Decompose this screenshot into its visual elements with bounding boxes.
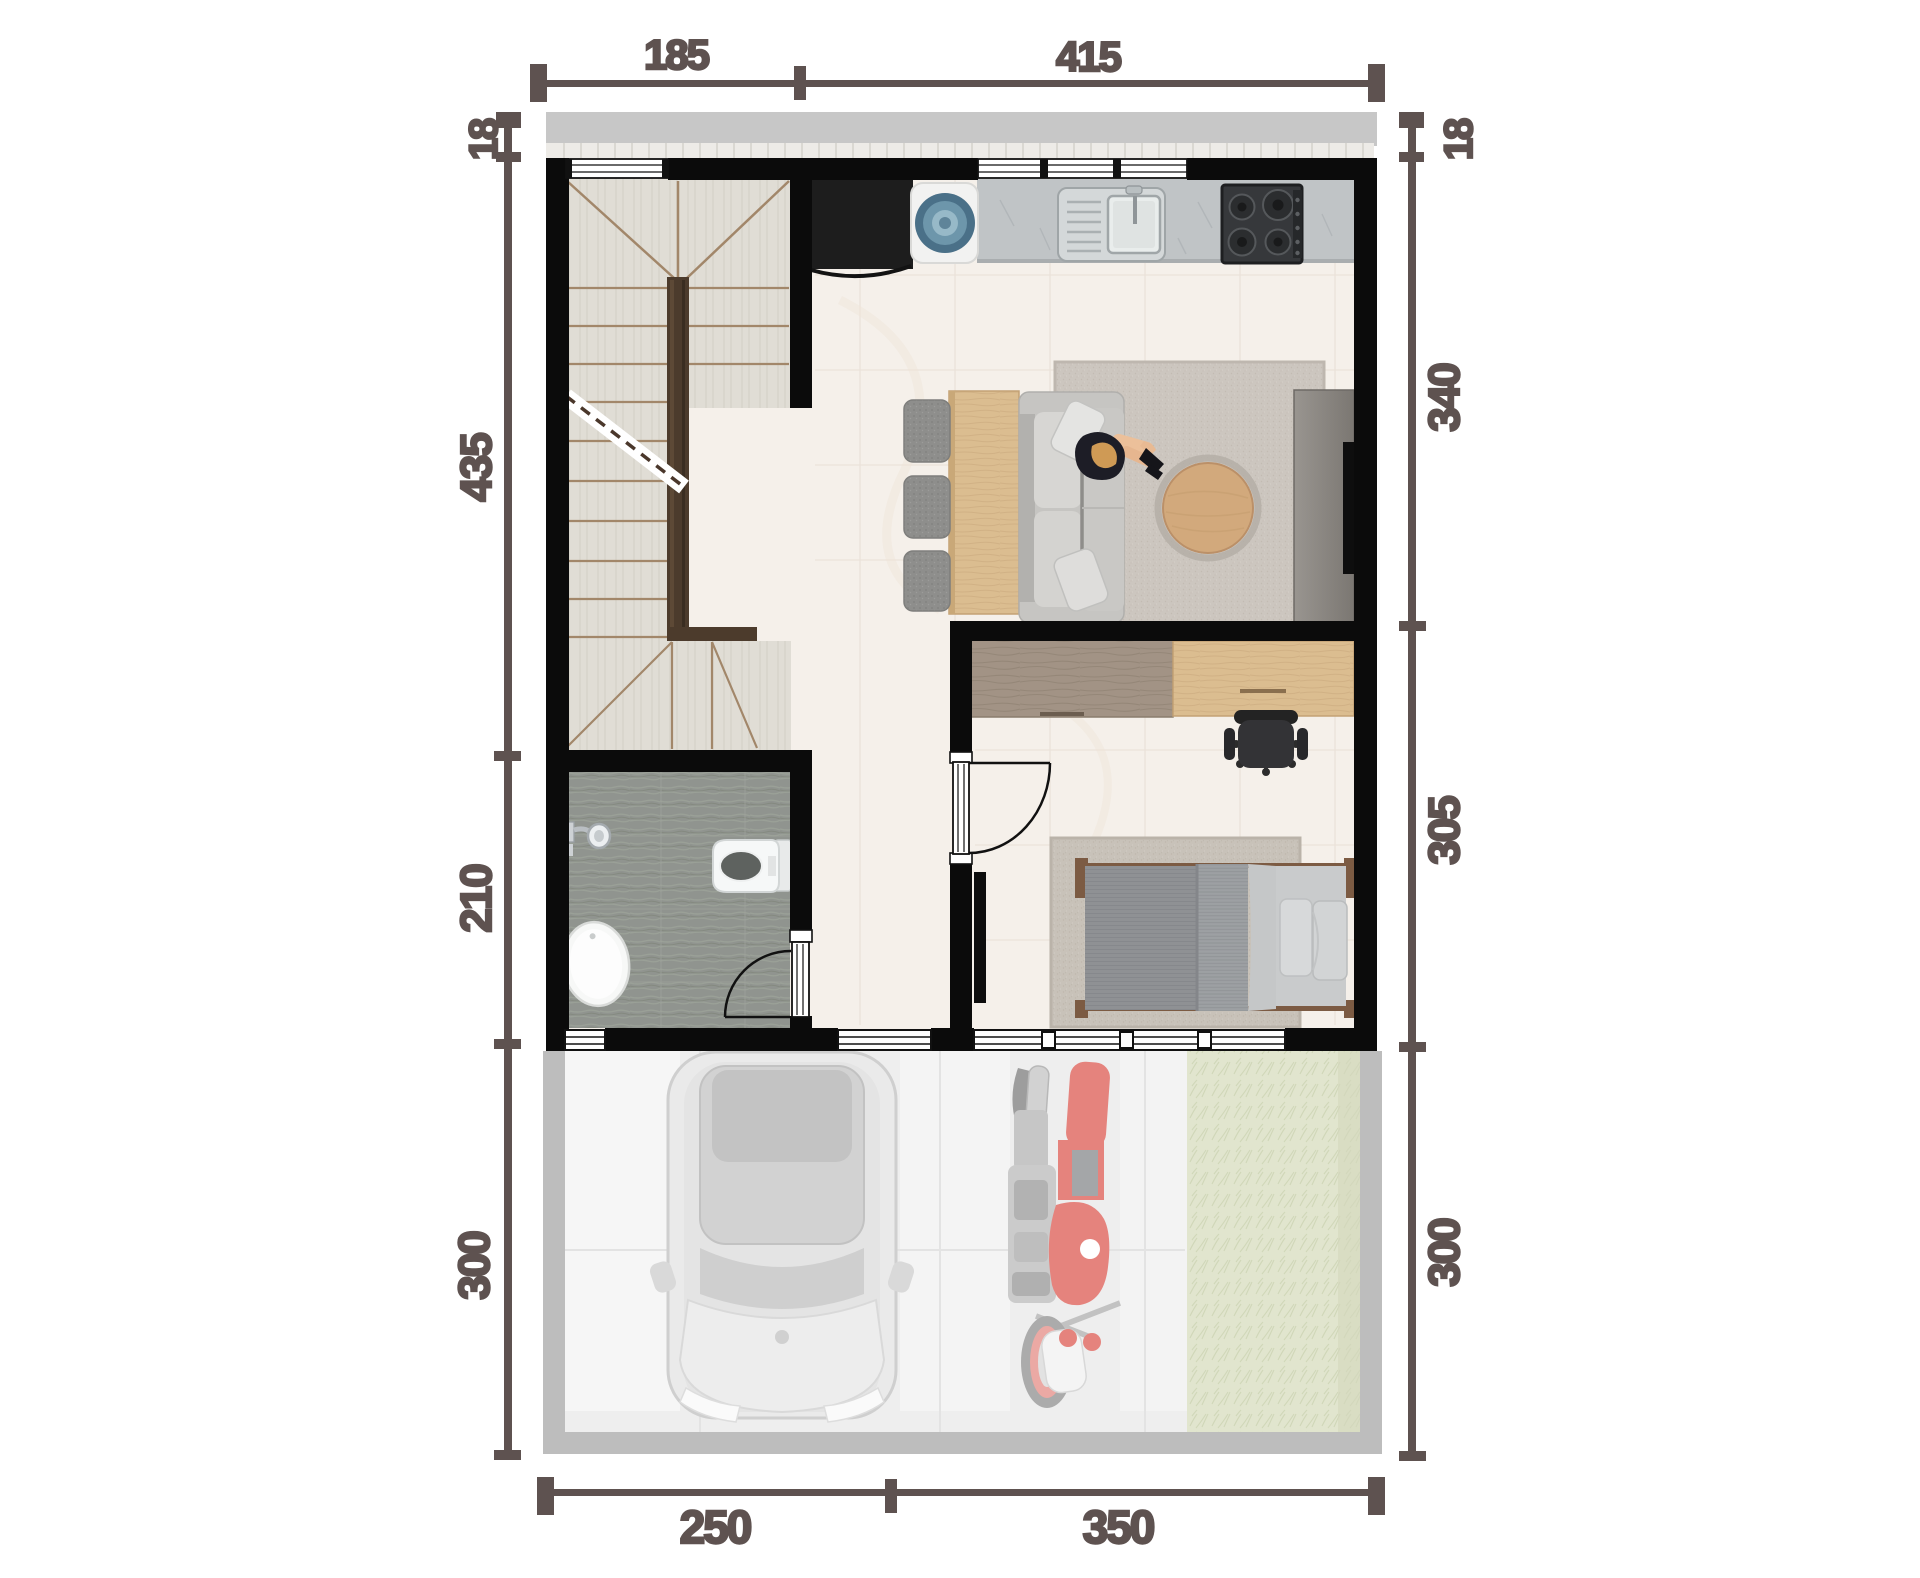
svg-text:340: 340: [1420, 364, 1469, 432]
svg-text:300: 300: [450, 1232, 499, 1300]
svg-text:415: 415: [1056, 33, 1122, 80]
svg-text:18: 18: [462, 118, 506, 160]
svg-text:350: 350: [1083, 1501, 1154, 1553]
svg-text:185: 185: [644, 31, 710, 78]
svg-text:300: 300: [1420, 1219, 1469, 1287]
svg-text:435: 435: [452, 433, 501, 502]
svg-text:305: 305: [1420, 796, 1469, 865]
svg-text:18: 18: [1437, 118, 1481, 160]
svg-text:250: 250: [680, 1501, 751, 1553]
svg-text:210: 210: [452, 865, 501, 933]
